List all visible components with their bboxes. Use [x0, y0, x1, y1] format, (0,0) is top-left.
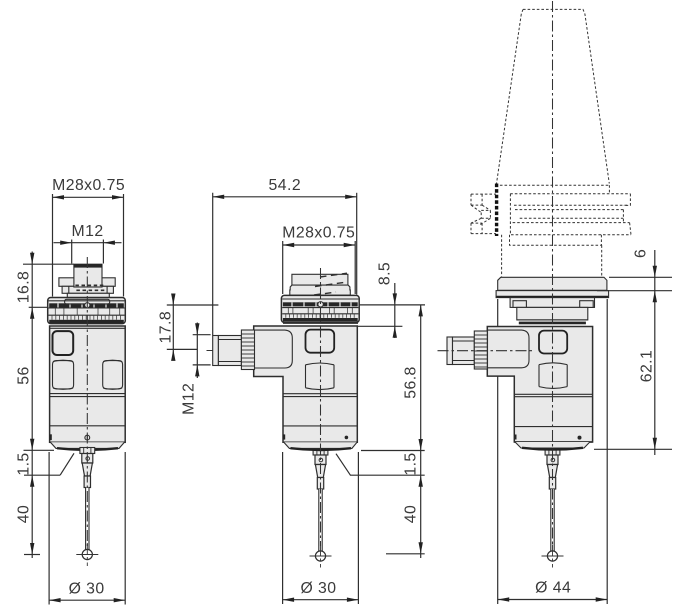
- svg-text:Ø 30: Ø 30: [69, 581, 105, 598]
- svg-text:6: 6: [632, 249, 649, 258]
- svg-text:56.8: 56.8: [403, 366, 420, 399]
- svg-text:M28x0.75: M28x0.75: [52, 177, 125, 194]
- svg-text:8.5: 8.5: [377, 262, 394, 285]
- svg-text:62.1: 62.1: [638, 350, 655, 383]
- svg-text:M12: M12: [180, 383, 197, 415]
- svg-text:16.8: 16.8: [16, 271, 33, 304]
- svg-text:M28x0.75: M28x0.75: [282, 225, 355, 242]
- svg-text:M12: M12: [72, 223, 104, 240]
- svg-text:40: 40: [403, 505, 420, 523]
- svg-text:1.5: 1.5: [16, 452, 33, 475]
- svg-text:Ø 30: Ø 30: [300, 580, 336, 597]
- svg-text:54.2: 54.2: [269, 177, 302, 194]
- svg-text:17.8: 17.8: [157, 311, 174, 344]
- svg-text:56: 56: [16, 366, 33, 384]
- svg-text:Ø 44: Ø 44: [535, 580, 571, 597]
- svg-text:40: 40: [16, 505, 33, 523]
- svg-text:1.5: 1.5: [403, 452, 420, 475]
